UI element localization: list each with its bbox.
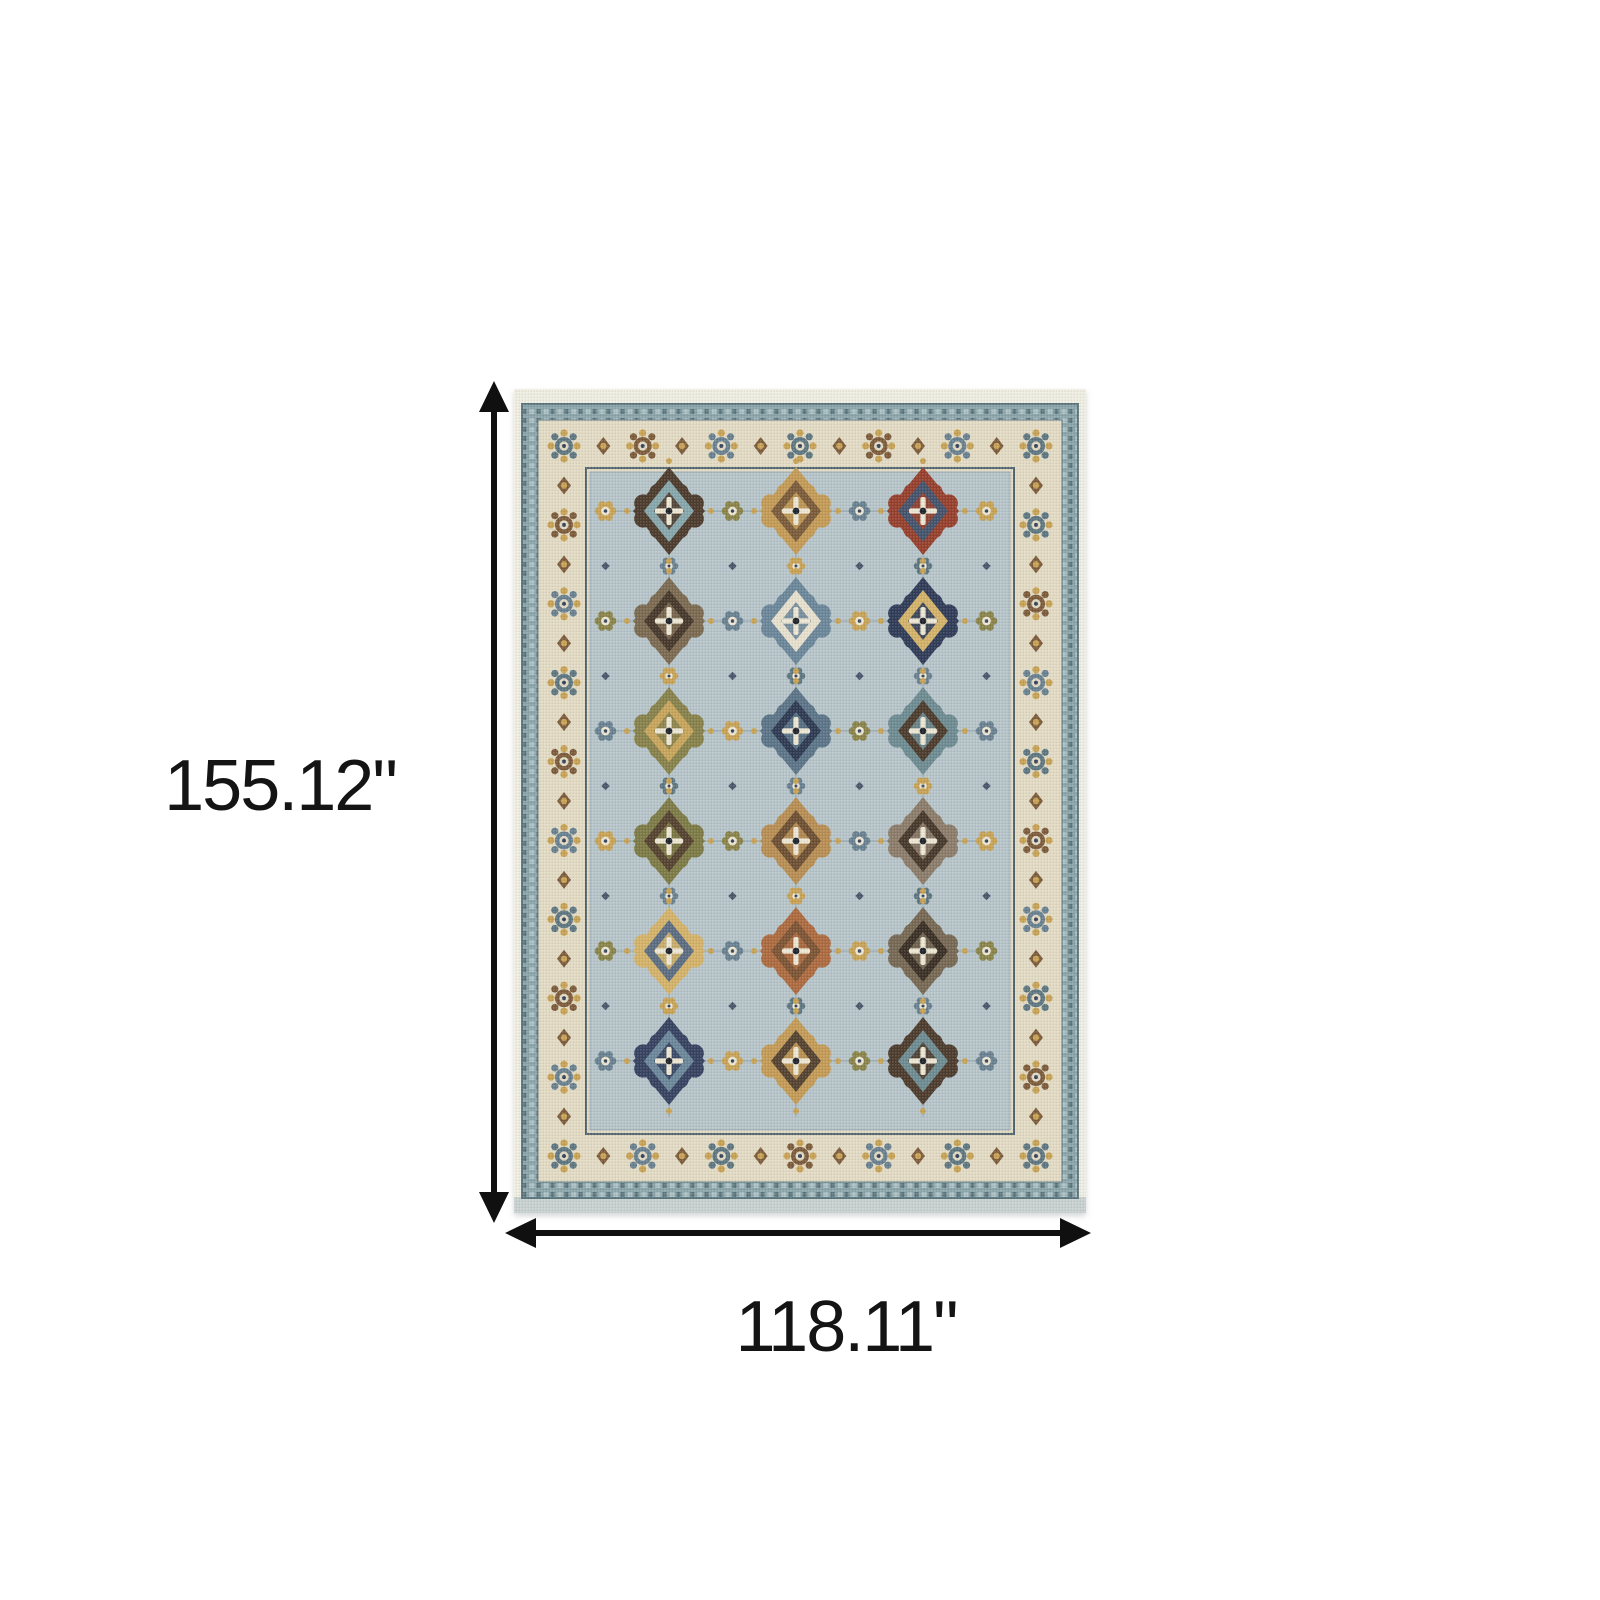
weave-texture [514,389,1086,1213]
height-dimension-label: 155.12" [70,745,490,827]
arrow-left-head-icon [505,1218,536,1248]
rug-image [514,389,1086,1213]
horizontal-dimension-arrow-icon [500,1216,1096,1250]
width-dimension-label: 118.11" [636,1286,1056,1368]
product-dimension-image: 155.12" 118.11" [0,0,1600,1600]
arrow-up-head-icon [479,381,509,412]
arrow-right-head-icon [1060,1218,1091,1248]
